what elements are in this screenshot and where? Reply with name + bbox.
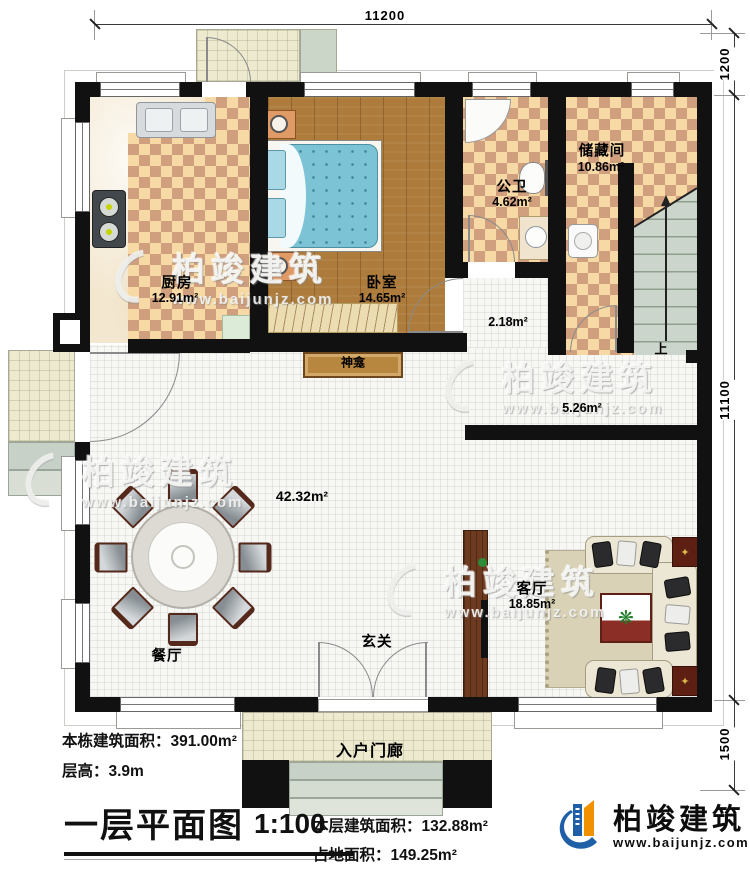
living-tv — [481, 600, 488, 658]
brand-logo-icon — [551, 796, 605, 859]
foyer-label: 玄关 — [362, 631, 393, 652]
wall — [180, 82, 202, 97]
wall — [415, 82, 472, 97]
wall — [128, 339, 250, 353]
wall — [235, 697, 318, 712]
wall — [657, 697, 712, 712]
hall-area: 2.18m² — [488, 315, 528, 329]
wall — [246, 82, 304, 97]
wall — [445, 262, 468, 278]
wall — [75, 697, 120, 712]
kitchen-sink-basin-2 — [180, 108, 208, 132]
dimension-extension — [714, 95, 745, 96]
entrance-porch-column-right — [443, 760, 492, 808]
window — [631, 82, 674, 97]
wall — [75, 442, 90, 460]
wall — [465, 425, 697, 440]
side-porch-floor — [8, 350, 75, 442]
window — [75, 122, 90, 212]
dimension-right-top-value: 1200 — [714, 48, 735, 81]
brand-name: 柏竣建筑 — [613, 805, 749, 835]
sofa-pillow — [591, 541, 613, 568]
wall — [75, 212, 90, 315]
kitchen-floor — [128, 133, 250, 343]
wall — [428, 697, 518, 712]
hall-floor — [463, 278, 548, 348]
sofa-pillow — [616, 540, 637, 567]
plan-title-underline-thin — [64, 859, 354, 860]
window — [75, 603, 90, 663]
wardrobe — [268, 303, 398, 333]
partition-plant — [478, 558, 487, 567]
sofa-pillow — [594, 667, 616, 694]
washing-machine-drum — [574, 232, 592, 250]
living-area: 18.85m² — [509, 597, 556, 611]
storage-area: 10.86m² — [578, 160, 625, 174]
wall-column-hole — [60, 320, 80, 344]
dining-label: 餐厅 — [152, 645, 183, 666]
footprint-area: 占地面积：149.25m² — [313, 843, 457, 865]
kitchen-sink-basin-1 — [145, 108, 173, 132]
sofa-pillow — [664, 604, 691, 625]
floor-area: 本层建筑面积：132.88m² — [313, 814, 488, 836]
shrine-label: 神龛 — [341, 354, 365, 371]
bedroom-area: 14.65m² — [359, 291, 406, 305]
window-sill — [514, 711, 663, 729]
sofa-pillow — [619, 668, 640, 695]
corridor-area: 5.26m² — [562, 401, 602, 415]
back-porch-door-leaf — [206, 37, 208, 82]
dining-chair — [239, 543, 272, 573]
dining-table-center — [171, 545, 195, 569]
entry-door-left-leaf — [318, 642, 320, 697]
dimension-extension — [700, 790, 745, 791]
end-table-bottom: ✦ — [672, 666, 698, 696]
wall — [75, 82, 90, 122]
dimension-right-mid-value: 11100 — [714, 380, 735, 420]
sofa-pillow — [664, 631, 691, 652]
entrance-porch-column-left — [242, 760, 289, 808]
dimension-extension — [700, 33, 745, 34]
window — [100, 82, 180, 97]
sofa-pillow — [642, 667, 665, 695]
open-area-label: 42.32m² — [276, 488, 328, 504]
entrance-step-2 — [289, 780, 443, 798]
bedroom-label: 卧室 — [367, 272, 398, 293]
wall — [531, 82, 631, 97]
entry-door-right-leaf — [425, 642, 427, 697]
kitchen-label: 厨房 — [162, 272, 193, 293]
stove-burner-1 — [99, 197, 119, 217]
stairs-up-label: 上 — [654, 339, 667, 358]
dimension-right-bottom-value: 1500 — [714, 728, 735, 761]
wall — [548, 97, 566, 355]
wall — [697, 82, 712, 712]
stove-burner-2 — [99, 222, 119, 242]
coffee-table: ❋ — [600, 593, 652, 643]
bathroom-area: 4.62m² — [492, 195, 532, 209]
dimension-extension — [714, 700, 745, 701]
bathroom-label: 公卫 — [497, 176, 528, 197]
window-sill — [116, 711, 241, 729]
stair-arrow-head — [661, 195, 671, 206]
living-label: 客厅 — [517, 578, 548, 599]
end-table-top: ✦ — [672, 537, 698, 567]
dimension-top-value: 11200 — [362, 8, 408, 23]
wall — [445, 97, 463, 262]
dining-chair — [168, 469, 198, 502]
window — [75, 460, 90, 525]
plan-title-underline — [64, 852, 354, 856]
building-total-area: 本栋建筑面积：391.00m² — [62, 729, 237, 751]
wall — [250, 333, 467, 352]
kitchen-area: 12.91m² — [152, 291, 199, 305]
brand-logo: 柏竣建筑 www.baijunjz.com — [551, 796, 749, 859]
dimension-line-top — [95, 24, 712, 25]
wall — [75, 525, 90, 603]
window — [304, 82, 415, 97]
dining-chair — [95, 543, 128, 573]
dining-chair — [168, 613, 198, 646]
window — [518, 697, 657, 712]
window — [472, 82, 531, 97]
nightstand-lamp-top — [270, 115, 288, 133]
window — [120, 697, 235, 712]
brand-website: www.baijunjz.com — [613, 835, 749, 850]
door-threshold — [318, 699, 430, 712]
bathroom-door-leaf — [468, 215, 470, 262]
wall — [686, 350, 712, 363]
entrance-porch-label: 入户门廊 — [336, 737, 404, 761]
wall — [250, 97, 268, 333]
stair-arrow-shaft — [665, 205, 667, 341]
entrance-step-1 — [289, 762, 443, 780]
nightstand-lamp-bottom — [270, 257, 288, 275]
floor-height: 层高：3.9m — [62, 759, 144, 781]
floor-plan-canvas: ❋ ✦ ✦ — [0, 0, 750, 878]
wall — [618, 163, 634, 353]
plan-title: 一层平面图 — [64, 798, 244, 847]
storage-label: 储藏间 — [579, 140, 626, 161]
bathroom-sink — [525, 226, 547, 248]
